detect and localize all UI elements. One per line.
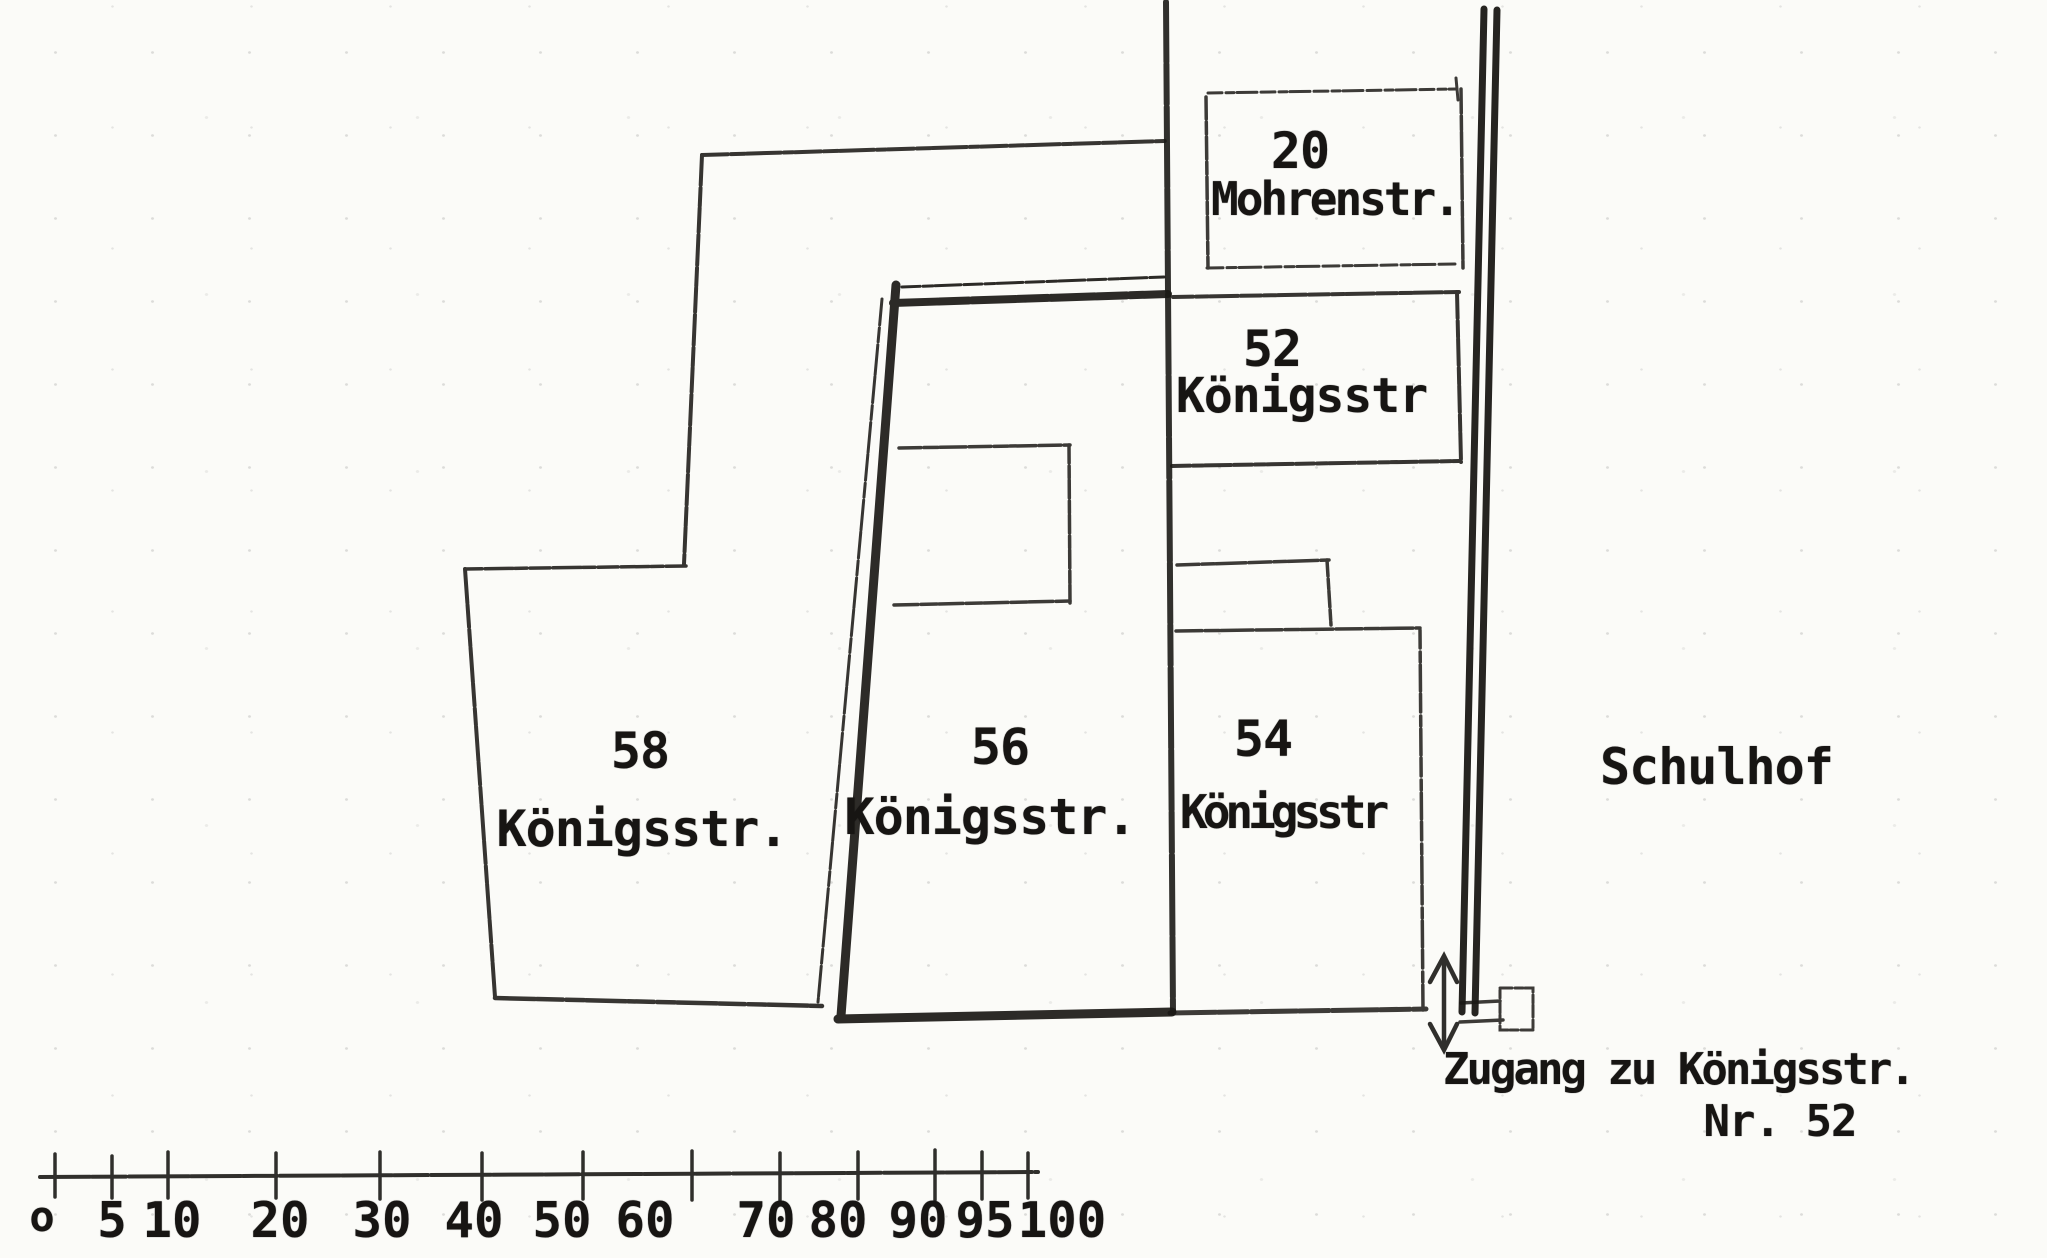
boundary-line-plot54-west [1166,2,1173,1012]
scale-label-40: 40 [444,1196,503,1245]
scale-label-100: 100 [1018,1196,1107,1245]
scale-label-80: 80 [808,1196,867,1245]
scale-label-20: 20 [250,1196,309,1245]
scale-label-50: 50 [532,1196,591,1245]
plot-58-number: 58 [611,726,669,776]
scale-label-95: 95 [955,1196,1014,1245]
plot-20-street: Mohrenstr. [1211,176,1458,222]
plot-52-street: Königsstr [1176,372,1427,420]
scale-label-90: 90 [888,1196,947,1245]
scale-label-10: 10 [142,1196,201,1245]
scale-label-0: o [29,1196,54,1238]
zugang-arrow-icon [1430,956,1457,1050]
plot-58-outline [465,141,1165,1006]
scale-label-5: 5 [97,1196,127,1245]
plot-52-number: 52 [1243,324,1301,374]
plot-58-street: Königsstr. [496,804,787,854]
plot-20-number: 20 [1271,126,1329,176]
scale-label-60: 60 [615,1196,674,1245]
zugang-label-line2: Nr. 52 [1704,1100,1857,1144]
plot-54-number: 54 [1234,714,1292,764]
plot-54-street: Königsstr [1180,789,1384,835]
zugang-label-line1: Zugang zu Königsstr. [1443,1048,1913,1092]
gate-symbol [1460,988,1533,1030]
schulhof-boundary-wall [1462,9,1497,1013]
plot-56-outline [838,277,1172,1019]
scale-label-30: 30 [352,1196,411,1245]
plot-56-inner-building [894,445,1070,605]
schulhof-label: Schulhof [1600,742,1833,792]
scale-label-70: 70 [736,1196,795,1245]
plot-56-number: 56 [971,722,1029,772]
site-plan-page: 20 Mohrenstr. 52 Königsstr 58 Königsstr.… [0,0,2047,1258]
plot-56-street: Königsstr. [844,792,1135,842]
